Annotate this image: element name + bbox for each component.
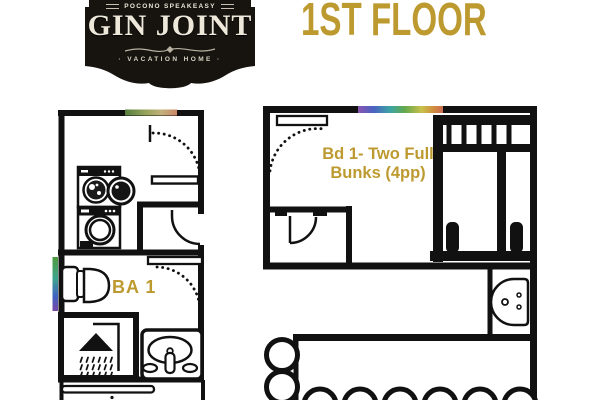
floorplan-page: POCONO SPEAKEASY GIN JOINT · VACATION HO… <box>0 0 600 400</box>
bedroom-label: Bd 1- Two Full Bunks (4pp) <box>303 145 453 183</box>
toilet-icon <box>62 267 109 302</box>
bedroom-label-line2: Bunks (4pp) <box>303 164 453 183</box>
bar-counter-stools <box>267 338 537 400</box>
shower-icon <box>61 315 136 378</box>
laundry-shelf <box>152 177 198 184</box>
flourish-icon <box>120 43 220 55</box>
bedroom-label-line1: Bd 1- Two Full <box>303 145 453 164</box>
left-closet-door <box>172 210 200 244</box>
bathroom-label: BA 1 <box>112 277 156 298</box>
page-title: 1st Floor <box>301 0 487 42</box>
window-bedroom <box>358 106 443 113</box>
vanity-sink-icon <box>142 330 202 379</box>
bedroom-closet-door <box>275 209 327 243</box>
badge-title-text: GIN JOINT <box>88 11 253 41</box>
window-bathroom <box>53 257 59 311</box>
badge-subtitle-text: · VACATION HOME · <box>118 56 221 63</box>
laundry-door <box>150 125 200 184</box>
bar-sink-icon <box>491 279 528 325</box>
entry-door-leaf <box>62 386 154 399</box>
bunk-bed-icon <box>430 115 531 262</box>
window-laundry <box>125 110 177 116</box>
gin-joint-logo-badge: POCONO SPEAKEASY GIN JOINT · VACATION HO… <box>85 0 255 92</box>
washer-dryer-stack-icon <box>78 167 134 248</box>
